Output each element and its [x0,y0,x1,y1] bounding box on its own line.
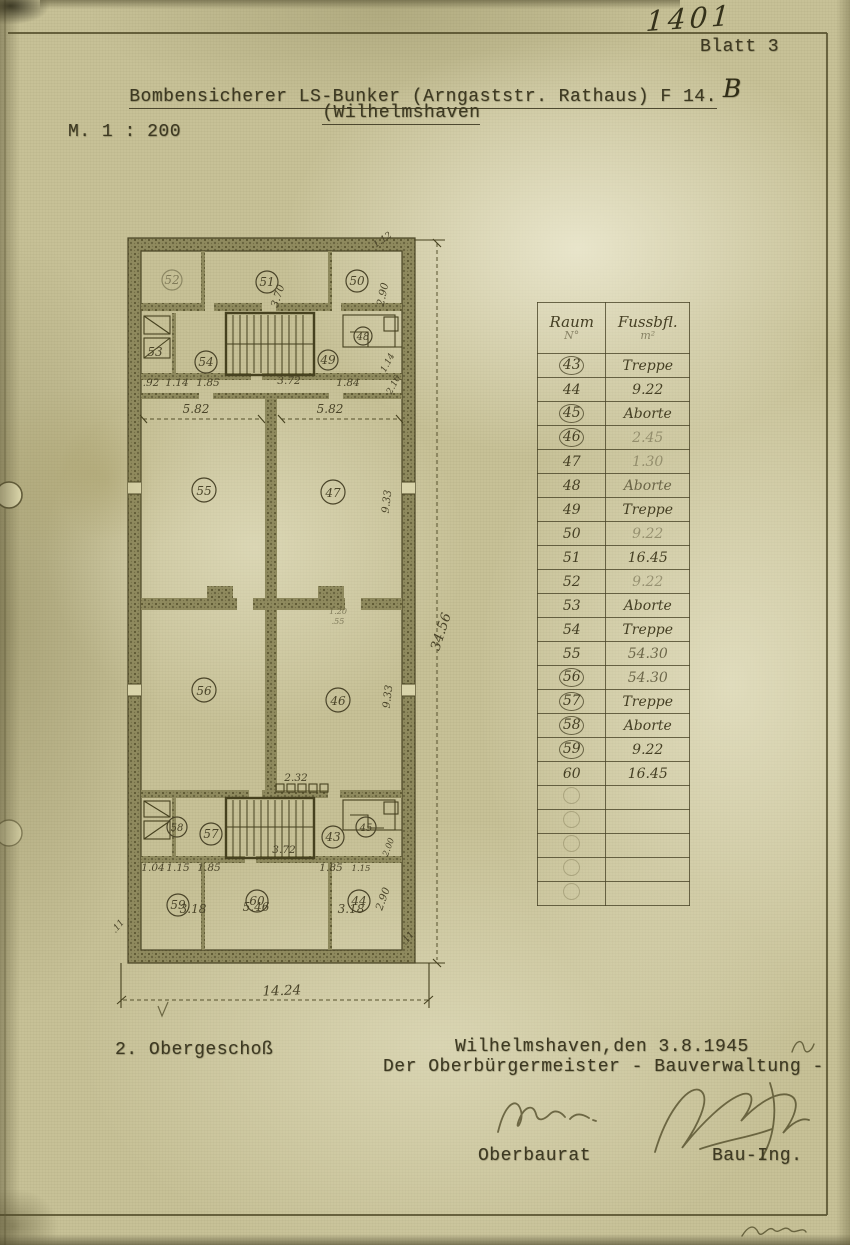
dim-290-bot: 2.90 [373,886,393,913]
table-row: 509.22 [538,522,690,546]
table-row: 45Aborte [538,402,690,426]
table-row: 529.22 [538,570,690,594]
room-area: Aborte [606,474,690,498]
room-number: 55 [562,646,581,662]
table-row: 5116.45 [538,546,690,570]
table-row: 5554.30 [538,642,690,666]
table-row: 471.30 [538,450,690,474]
dim-318-left: 3.18 [180,902,207,916]
dim-104: 1.04 [141,862,164,874]
room-number: 43 [559,356,584,375]
role-bau-ing: Bau-Ing. [712,1146,802,1167]
room-45: 45 [359,823,373,834]
room-area: Treppe [606,498,690,522]
room-number: 49 [562,502,581,518]
punch-hole [0,482,22,508]
room-area: Treppe [606,690,690,714]
dim-115: 1.15 [166,862,190,874]
room-area: Aborte [606,714,690,738]
dim-372-top: 3.72 [277,375,301,387]
title-annotation-b: B [723,74,742,103]
room-area: 16.45 [606,546,690,570]
punch-hole [0,820,22,846]
dim-933-bot: 9.33 [381,684,396,709]
stairwell-top [226,313,314,375]
table-row: 54Treppe [538,618,690,642]
room-area: Aborte [606,594,690,618]
room-number: 56 [559,668,584,687]
document-subtitle: (Wilhelmshaven [322,103,480,125]
room-number: 54 [562,622,581,638]
dim-114b: 1.14 [379,352,397,375]
table-row: 53Aborte [538,594,690,618]
room-area: 2.45 [606,426,690,450]
room-number: 53 [562,598,581,614]
room-area: 54.30 [606,666,690,690]
dim-185-br: 1.85 [319,862,343,874]
dim-185-bot: 1.85 [197,862,221,874]
table-row: 58Aborte [538,714,690,738]
room-number: 46 [559,428,584,447]
room-50: 50 [349,274,365,288]
room-58: 58 [171,823,184,834]
table-row: 57Treppe [538,690,690,714]
table-row: 449.22 [538,378,690,402]
room-48: 48 [356,332,370,343]
dim-92: .92 [143,377,160,389]
room-area-table: Raum N° Fussbfl. m² 43Treppe 449.22 45Ab… [537,302,690,906]
table-row: 49Treppe [538,498,690,522]
floor-label: 2. Obergeschoß [115,1040,273,1061]
col-header-flaeche: Fussbfl. m² [606,303,690,354]
room-56: 56 [196,684,212,698]
dim-200: 2.00 [381,836,397,859]
table-row: 43Treppe [538,354,690,378]
room-number: 51 [562,550,581,566]
room-number: 58 [559,716,584,735]
room-number: 45 [559,404,584,423]
room-area: Treppe [606,618,690,642]
table-row-empty [538,786,690,810]
table-row-empty [538,810,690,834]
room-43: 43 [324,830,341,844]
authority-line: Der Oberbürgermeister - Bauverwaltung - [383,1057,824,1078]
room-number: 52 [562,574,581,590]
room-area: 1.30 [606,450,690,474]
table-row: 6016.45 [538,762,690,786]
dimension-ticks [117,239,445,1008]
table-row-empty [538,858,690,882]
room-number: 50 [562,526,581,542]
room-47: 47 [324,486,341,500]
room-52: 52 [164,273,179,287]
signature-oberbaurat [498,1103,596,1132]
table-row-empty [538,882,690,906]
sheet-label: Blatt 3 [700,37,779,58]
table-row: 5654.30 [538,666,690,690]
room-number: 44 [562,382,581,398]
room-area: Aborte [606,402,690,426]
room-number: 59 [559,740,584,759]
dim-1424: 14.24 [262,982,301,999]
dim-55: .55 [332,617,345,626]
scale-label: M. 1 : 200 [68,122,181,143]
room-49: 49 [319,353,336,367]
stairwell-bottom [226,798,314,858]
table-row: 599.22 [538,738,690,762]
room-46: 46 [329,694,346,708]
room-54: 54 [198,355,213,369]
room-area: 9.22 [606,378,690,402]
floor-plan: 52 51 50 53 54 49 48 55 47 56 46 58 57 4… [110,230,455,1016]
room-area: 9.22 [606,738,690,762]
table-row: 48Aborte [538,474,690,498]
place-date: Wilhelmshaven,den 3.8.1945 [455,1037,749,1058]
room-53: 53 [147,345,163,359]
dim-120: 1.20 [329,607,347,616]
room-number: 48 [562,478,581,494]
dim-582-right: 5.82 [317,402,344,416]
scanned-blueprint-page: { "page": { "sheet_number": "1401", "she… [0,0,850,1245]
table-row: 462.45 [538,426,690,450]
dim-318-right: 3.18 [338,902,365,916]
table-header-row: Raum N° Fussbfl. m² [538,303,690,354]
dim-184: 1.84 [336,377,359,389]
room-57: 57 [203,827,219,841]
dim-372-bot: 3.72 [272,844,296,856]
room-area: Treppe [606,354,690,378]
room-area: 9.22 [606,522,690,546]
dim-185-top: 1.85 [196,377,220,389]
room-51: 51 [259,275,274,289]
table-row-empty [538,834,690,858]
dim-3456: 34.56 [428,611,455,653]
room-55: 55 [196,484,211,498]
col-header-raum: Raum N° [538,303,606,354]
dim-546: 5.46 [243,900,270,914]
room-number: 47 [562,454,581,470]
room-area: 16.45 [606,762,690,786]
dim-114: 1.14 [165,377,188,389]
corner-scribble [742,1227,806,1236]
dim-11-left: .11 [110,918,127,935]
room-area: 9.22 [606,570,690,594]
room-area: 54.30 [606,642,690,666]
dim-933-top: 9.33 [380,489,395,514]
dim-232: 2.32 [283,772,308,784]
sheet-number-handwritten: 1401 [645,0,734,38]
dim-115b: 1.15 [352,864,371,874]
room-number: 57 [559,692,584,711]
check-mark [158,1002,168,1016]
dim-582-left: 5.82 [183,402,210,416]
role-oberbaurat: Oberbaurat [478,1146,591,1167]
date-flourish [792,1042,814,1052]
room-number: 60 [562,766,581,782]
